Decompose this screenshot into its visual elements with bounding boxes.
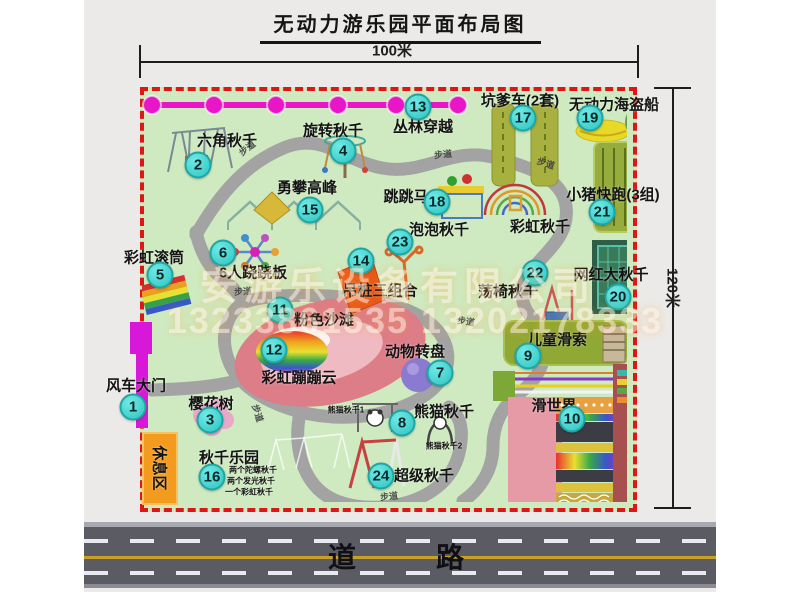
dimension-top-label: 100米 (372, 40, 412, 61)
rest-area-box (142, 432, 178, 505)
dimension-right-tick-bottom (654, 507, 691, 509)
dimension-top-tick-left (139, 45, 141, 78)
park-map-area (140, 87, 637, 512)
screenshot: 无动力游乐园平面布局图 100米 120米 (0, 0, 800, 600)
road: 道 路 (84, 522, 716, 588)
dimension-right-label: 120米 (663, 268, 684, 308)
road-label: 道 路 (328, 536, 472, 576)
dimension-right-tick-top (654, 87, 691, 89)
dimension-top-line (140, 61, 638, 63)
dimension-top-tick-right (637, 45, 639, 78)
